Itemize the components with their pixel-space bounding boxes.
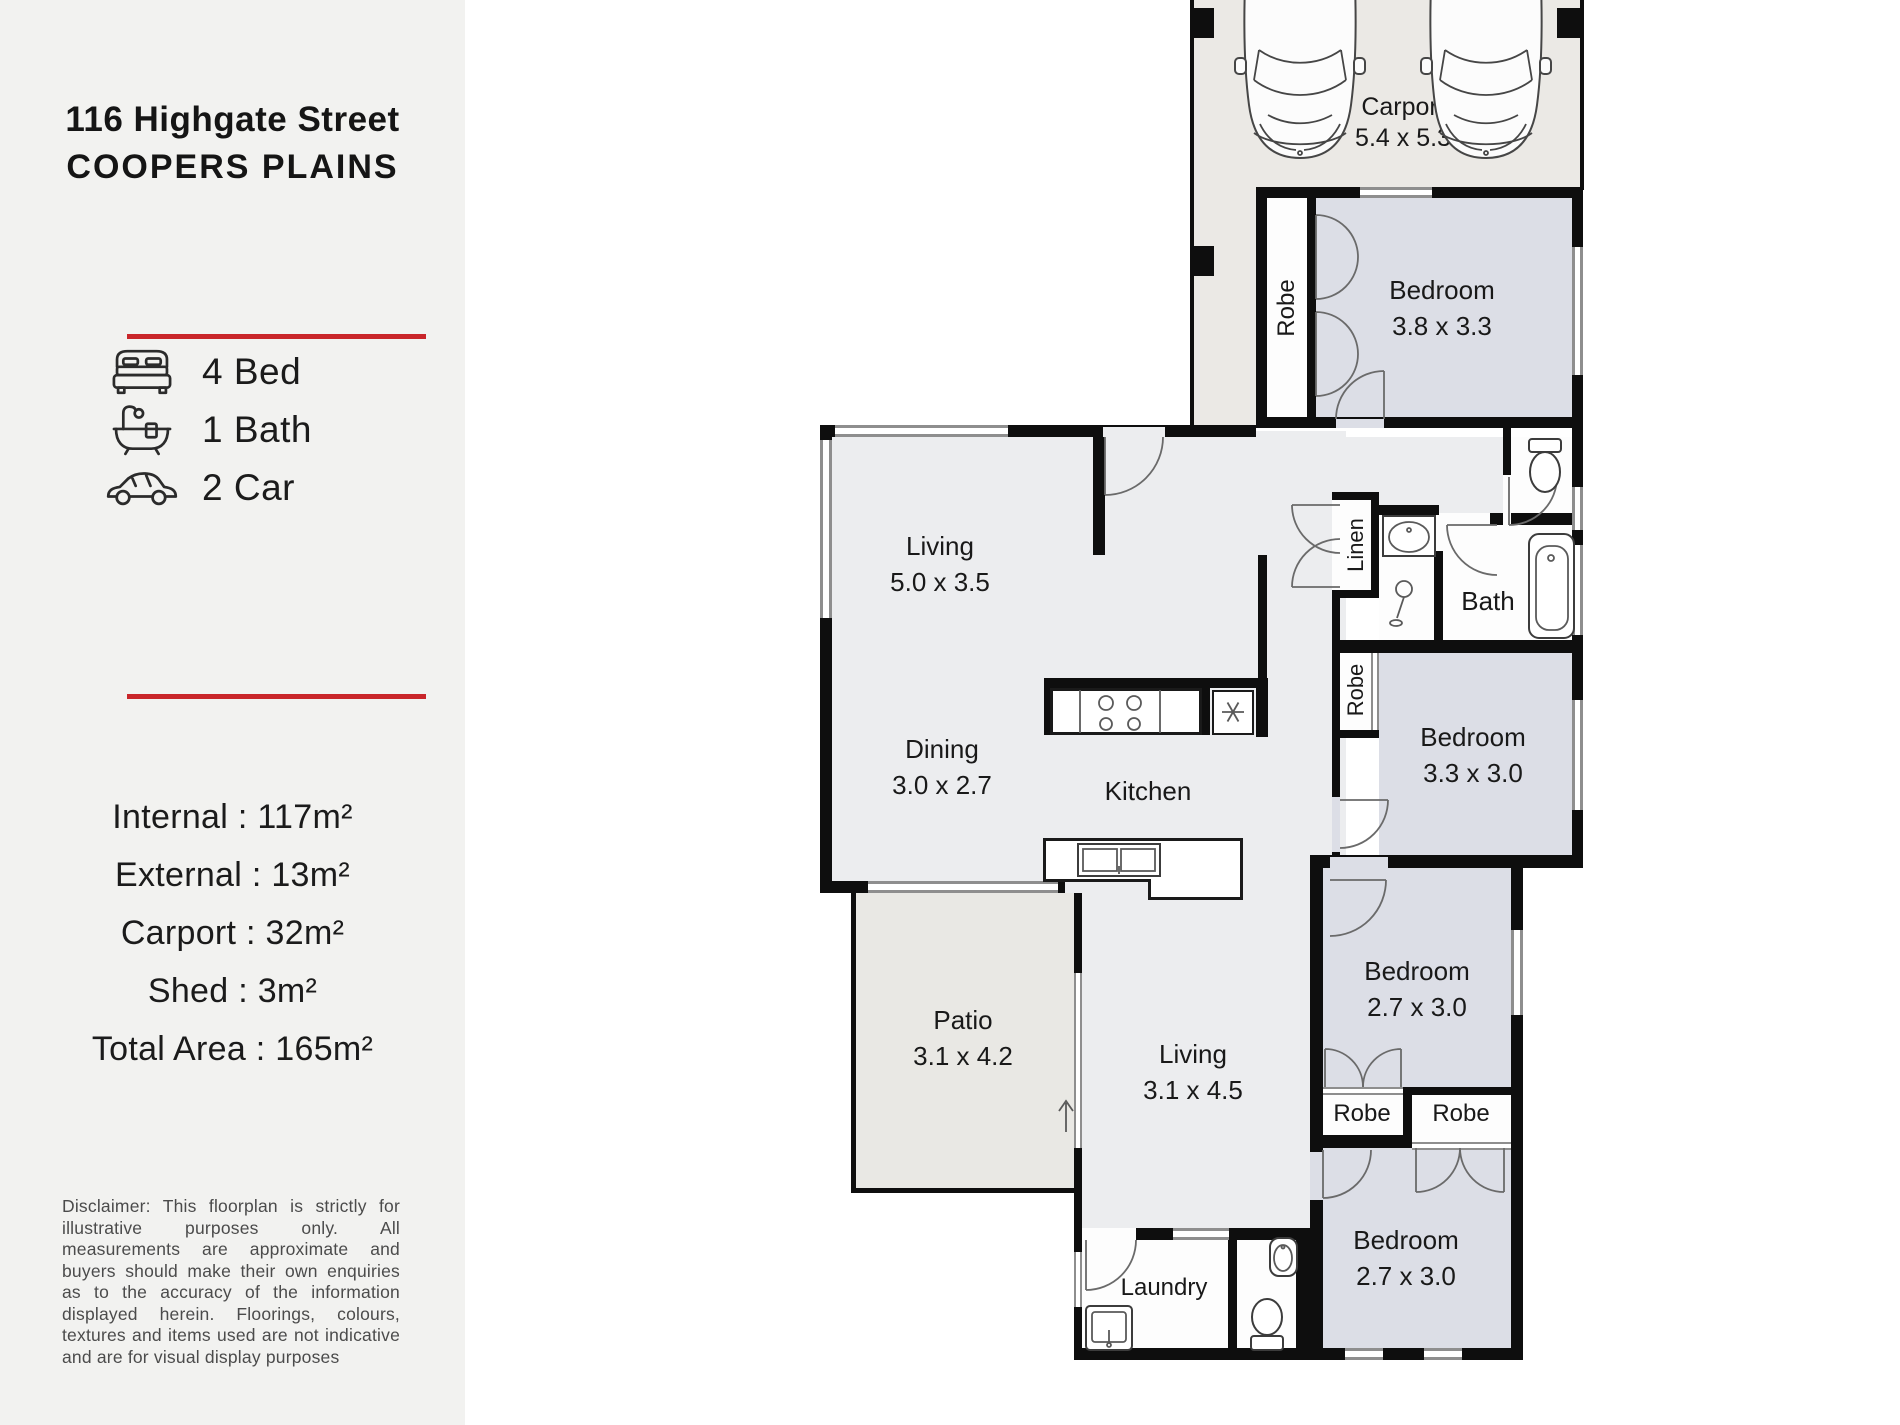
floorplan-page: 116 Highgate Street COOPERS PLAINS 4 Bed xyxy=(0,0,1900,1425)
shower-fixture xyxy=(1390,581,1412,626)
fan-symbol xyxy=(1222,703,1244,722)
vanity-basin-fixture xyxy=(1383,516,1435,556)
fixtures-layer xyxy=(0,0,1900,1425)
wc-basin-fixture xyxy=(1270,1238,1297,1276)
door-arcs xyxy=(1086,215,1557,1290)
car-top-view xyxy=(1421,0,1551,158)
cooktop-fixture xyxy=(1080,690,1160,733)
car-top-view xyxy=(1235,0,1365,158)
entry-arrow xyxy=(1059,1101,1073,1132)
toilet-fixture xyxy=(1529,439,1561,492)
bathtub-fixture xyxy=(1529,534,1574,638)
laundry-tub-fixture xyxy=(1086,1306,1132,1350)
double-sink-fixture xyxy=(1078,844,1160,876)
toilet-fixture xyxy=(1251,1299,1283,1350)
